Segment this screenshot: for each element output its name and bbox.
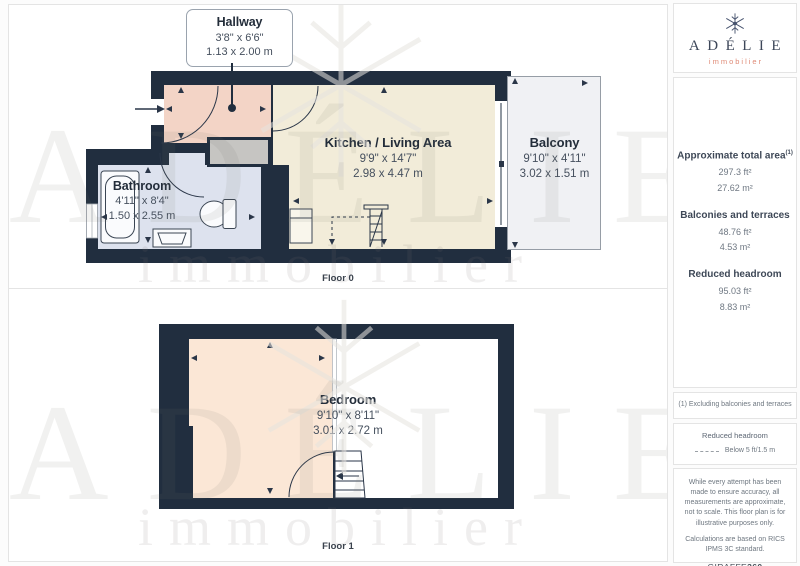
callout-anchor-dot [228,104,236,112]
room-dim-metric: 3.02 x 1.51 m [482,167,627,181]
legend-row: Below 5 ft/1.5 m [695,446,775,456]
room-dim-imperial: 9'10" x 8'11" [265,409,431,423]
floor0-area: Kitchen / Living Area 9'9" x 14'7" 2.98 … [9,5,667,289]
legend-title: Reduced headroom [702,431,768,440]
metric-label: Approximate total area(1) [677,150,793,161]
room-dim-imperial: 9'9" x 14'7" [304,152,472,166]
room-name: Hallway [189,15,290,31]
value-imperial: 95.03 ft² [688,284,781,299]
brand-tagline: immobilier [707,57,763,66]
room-name: Balcony [482,135,627,151]
floor1-plan: Bedroom 9'10" x 8'11" 3.01 x 2.72 m [159,324,514,509]
value-metric: 27.62 m² [677,181,793,196]
room-dim-metric: 1.13 x 2.00 m [189,46,290,60]
value-metric: 8.83 m² [688,300,781,315]
bedroom-label: Bedroom 9'10" x 8'11" 3.01 x 2.72 m [265,392,431,438]
room-name: Kitchen / Living Area [304,135,472,151]
floor1-label: Floor 1 [9,541,667,552]
metric-values: 48.76 ft² 4.53 m² [680,225,790,256]
metric-label-text: Approximate total area [677,150,785,161]
room-dim-metric: 1.50 x 2.55 m [82,210,202,223]
floorplan-page: Kitchen / Living Area 9'9" x 14'7" 2.98 … [0,0,800,566]
metric-total-area: Approximate total area(1) 297.3 ft² 27.6… [677,150,793,196]
room-dim-metric: 2.98 x 4.47 m [304,167,472,181]
metric-reduced-headroom: Reduced headroom 95.03 ft² 8.83 m² [688,269,781,315]
metric-values: 95.03 ft² 8.83 m² [688,284,781,315]
brand-name: ADÉLIE [682,38,788,55]
dashed-line-icon [695,451,719,452]
balcony-label: Balcony 9'10" x 4'11" 3.02 x 1.51 m [482,135,627,181]
disclaimer-box: While every attempt has been made to ens… [673,468,797,563]
floor1-area: Bedroom 9'10" x 8'11" 3.01 x 2.72 m ADÉL… [9,288,667,560]
brand-logo-box: ADÉLIE immobilier [673,3,797,73]
value-imperial: 48.76 ft² [680,225,790,240]
footnote-marker: (1) [786,150,793,156]
sink-icon [153,229,191,247]
entrance-arrow-icon [135,105,165,113]
room-name: Bedroom [265,392,431,408]
room-dim-imperial: 3'8" x 6'6" [189,32,290,46]
area-measurements: Approximate total area(1) 297.3 ft² 27.6… [673,77,797,388]
kitchen-unit-icon [290,209,312,243]
footnote-text: (1) Excluding balconies and terraces [678,400,791,410]
callout-leader-line [231,63,233,108]
snowflake-icon [724,12,746,35]
footnote-box: (1) Excluding balconies and terraces [673,392,797,419]
giraffe360-credit: GIRAFFE360 [683,562,787,566]
metric-label: Reduced headroom [688,269,781,280]
toilet-icon [200,200,236,229]
floorplan-panel: Kitchen / Living Area 9'9" x 14'7" 2.98 … [8,4,668,562]
headroom-legend-box: Reduced headroom Below 5 ft/1.5 m [673,423,797,465]
room-dim-imperial: 9'10" x 4'11" [482,152,627,166]
metric-values: 297.3 ft² 27.62 m² [677,165,793,196]
room-name: Bathroom [82,179,202,194]
credit-brand: GIRAFFE [707,562,747,566]
credit-suffix: 360 [747,562,762,566]
floor0-label: Floor 0 [9,273,667,284]
headroom-dashed-line [329,217,370,245]
disclaimer-text: While every attempt has been made to ens… [683,478,787,529]
metric-label: Balconies and terraces [680,210,790,221]
legend-text: Below 5 ft/1.5 m [725,446,775,456]
door-arc [273,86,318,131]
standards-text: Calculations are based on RICS IPMS 3C s… [683,535,787,555]
value-metric: 4.53 m² [680,240,790,255]
bathroom-label: Bathroom 4'11" x 8'4" 1.50 x 2.55 m [82,179,202,223]
kitchen-label: Kitchen / Living Area 9'9" x 14'7" 2.98 … [304,135,472,181]
metric-balconies: Balconies and terraces 48.76 ft² 4.53 m² [680,210,790,256]
door-arc [161,86,218,143]
hallway-callout: Hallway 3'8" x 6'6" 1.13 x 2.00 m [186,9,293,67]
room-dim-imperial: 4'11" x 8'4" [82,195,202,208]
value-imperial: 297.3 ft² [677,165,793,180]
floor0-plan: Kitchen / Living Area 9'9" x 14'7" 2.98 … [86,69,601,263]
door-arc [289,452,334,497]
room-dim-metric: 3.01 x 2.72 m [265,424,431,438]
